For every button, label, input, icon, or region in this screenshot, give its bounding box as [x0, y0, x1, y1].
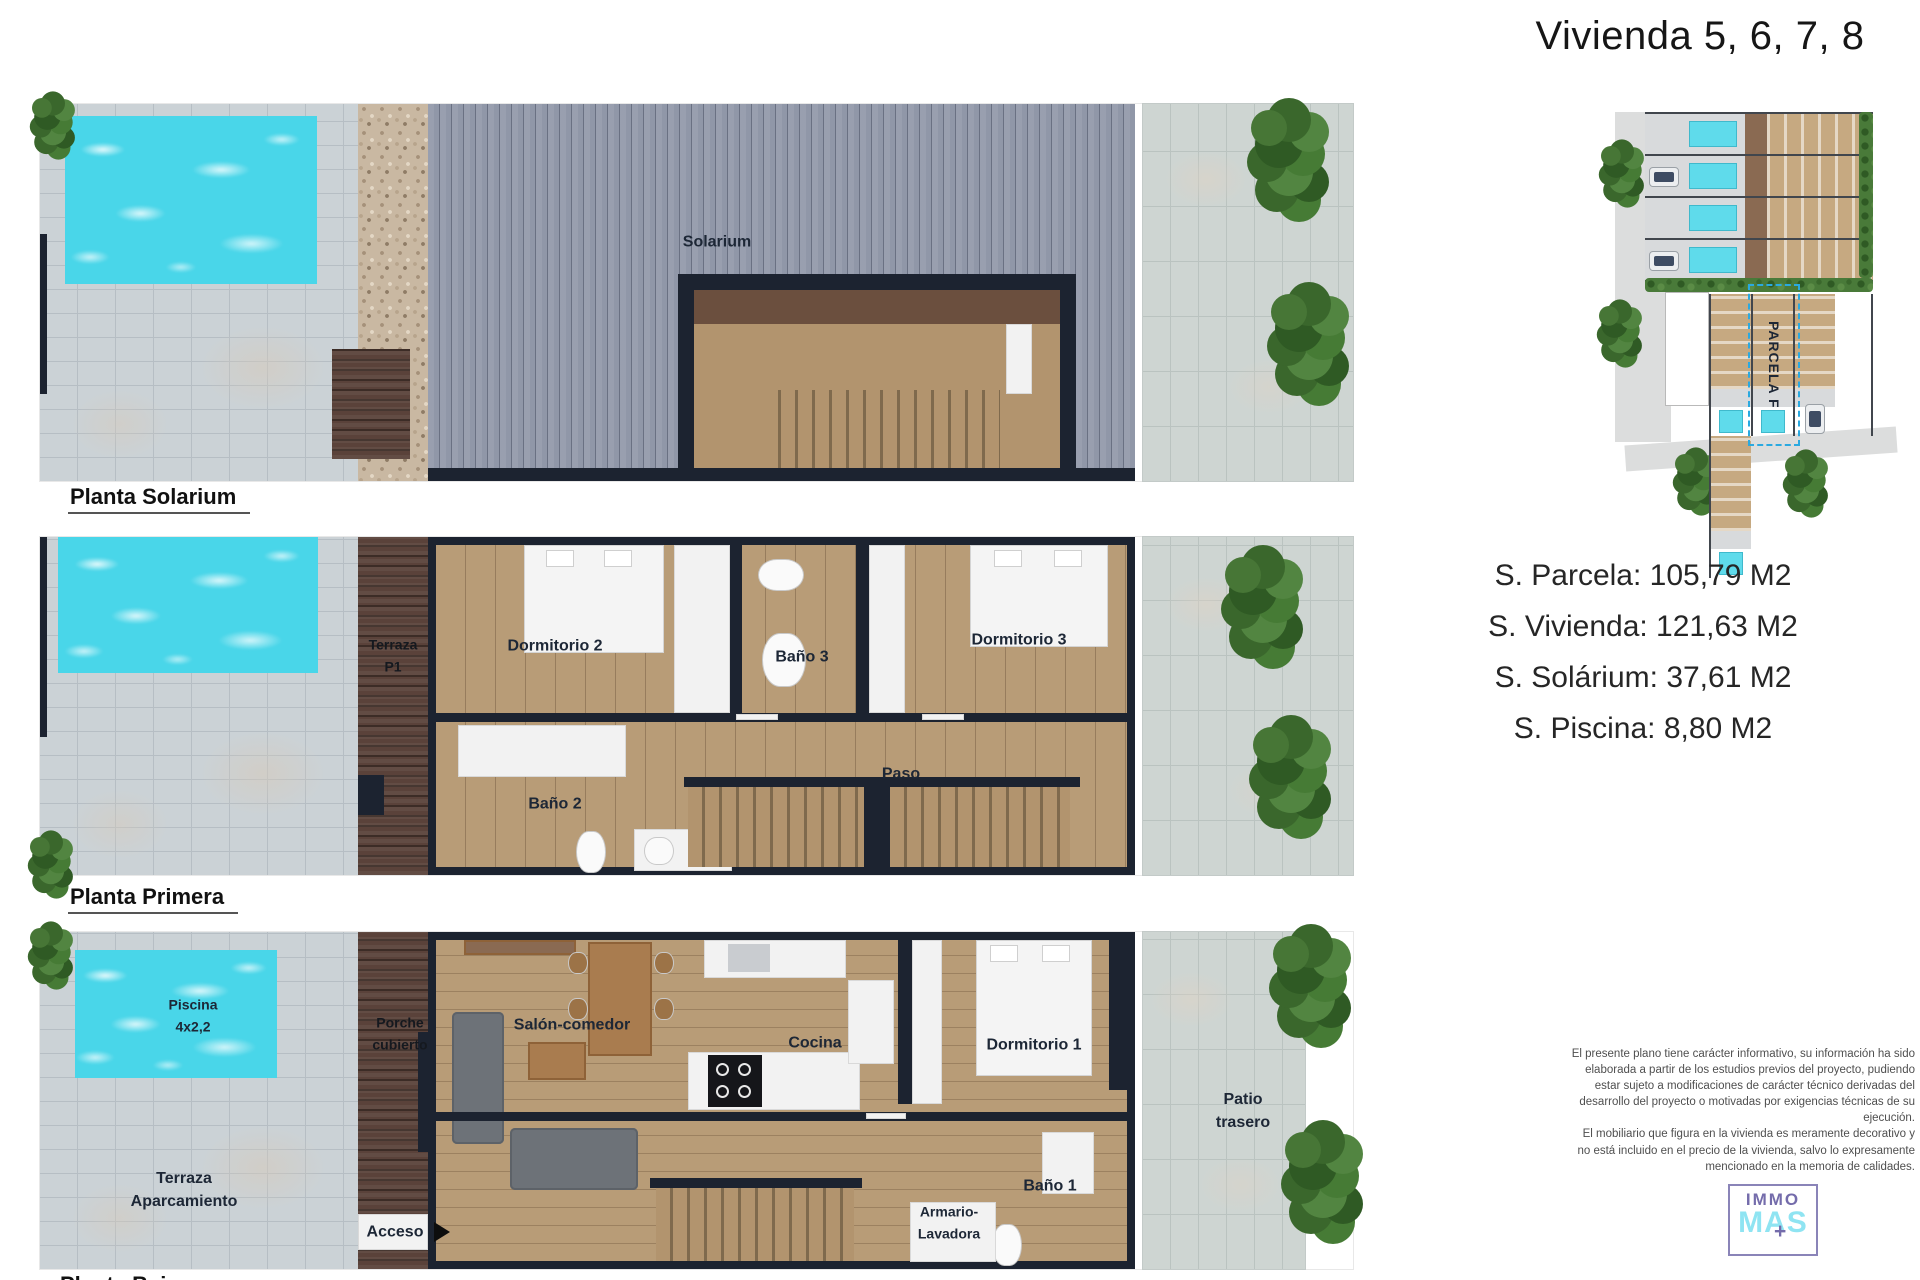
fridge-column [848, 980, 894, 1064]
room-label-piscina: Piscina 4x2,2 [168, 994, 217, 1037]
wardrobe-dark [1109, 940, 1127, 1090]
floor-plan-sheet: Solarium Planta Solarium Terraza P1 [0, 0, 1920, 1280]
baja-terrace-pavers: Piscina 4x2,2 Terraza Aparcamiento [40, 932, 358, 1269]
toilet [576, 831, 606, 873]
stairwell-box [678, 274, 1076, 481]
stair-rail [1006, 324, 1032, 394]
stair-wall [650, 1178, 862, 1188]
plant-icon [30, 928, 50, 948]
site-drive [1711, 389, 1751, 407]
dining-table [588, 942, 652, 1056]
stairs-flight-2 [890, 787, 1070, 867]
logo-mas-text: MAS [1730, 1208, 1816, 1238]
plan-title-solarium: Planta Solarium [68, 484, 250, 514]
sheet-title: Vivienda 5, 6, 7, 8 [1480, 14, 1920, 59]
logo-plus-icon: + [1774, 1220, 1786, 1244]
partition-wall [856, 545, 869, 713]
kitchen-counter [704, 940, 846, 978]
door-gap [866, 1113, 906, 1119]
stairs-flight-1 [688, 787, 864, 867]
car-icon [1649, 167, 1679, 187]
tree-icon [32, 98, 52, 118]
room-label-armario: Armario- Lavadora [918, 1201, 980, 1244]
primera-terrace-pavers [40, 537, 358, 875]
tree-icon [1675, 454, 1695, 474]
door-gap [736, 714, 778, 720]
hedge [1859, 112, 1873, 278]
plant-icon [30, 837, 50, 857]
room-label-patio: Patio trasero [1216, 1088, 1270, 1134]
plan-title-primera: Planta Primera [68, 884, 238, 914]
partition-wall [730, 545, 742, 713]
toilet [992, 1224, 1022, 1266]
closet [458, 725, 626, 777]
site-unit-col [1709, 294, 1751, 436]
site-deck [1745, 198, 1767, 238]
room-label-acceso: Acceso [367, 1220, 424, 1243]
room-label-terraza-p1: Terraza P1 [369, 634, 418, 677]
parcela-f-label: PARCELA F [1766, 321, 1782, 409]
tree-icon [1251, 110, 1287, 146]
wood-deck-block [332, 349, 410, 459]
solarium-side-paving [1143, 104, 1353, 481]
site-pool [1689, 247, 1737, 273]
upper-units [1645, 112, 1873, 280]
site-drive [1711, 531, 1751, 549]
terrace-left-wall [40, 537, 47, 737]
legal-disclaimer: El presente plano tiene carácter informa… [1570, 1046, 1915, 1175]
corridor-wall [436, 713, 1127, 722]
room-label-terraza-aparcamiento: Terraza Aparcamiento [131, 1167, 238, 1213]
primera-floor [436, 545, 1127, 867]
porche-deck [358, 932, 428, 1269]
site-interior [1767, 114, 1873, 154]
site-pool [1689, 163, 1737, 189]
room-label-dormitorio2: Dormitorio 2 [507, 634, 602, 657]
site-interior [1711, 294, 1751, 389]
cooktop [708, 1055, 762, 1107]
kitchen-appliance [728, 944, 770, 972]
partition-wall [898, 940, 912, 1104]
room-label-salon: Salón-comedor [514, 1013, 630, 1036]
plan-primera: Terraza P1 [40, 537, 1353, 875]
tree-icon [1225, 557, 1261, 593]
primera-building: Dormitorio 2 Baño 3 Dormitorio 3 Baño 2 … [428, 537, 1135, 875]
primera-side-paving [1143, 537, 1353, 875]
baja-building: Salón-comedor Cocina Dormitorio 1 Baño 1… [428, 932, 1135, 1269]
site-interior [1767, 240, 1873, 280]
site-interior [1711, 436, 1751, 531]
blank-unit [1665, 292, 1709, 406]
chair [568, 952, 588, 974]
stairwell-landing [694, 290, 1060, 324]
door-gap [922, 714, 964, 720]
plan-baja: Piscina 4x2,2 Terraza Aparcamiento Porch… [40, 932, 1353, 1269]
corridor-wall [436, 1112, 1127, 1121]
plan-solarium: Solarium [40, 104, 1353, 481]
wardrobe [674, 545, 730, 713]
disclaimer-paragraph-1: El presente plano tiene carácter informa… [1570, 1046, 1915, 1126]
parcela-f-outline: PARCELA F [1748, 284, 1800, 446]
tree-icon [1785, 456, 1805, 476]
site-deck [1745, 156, 1767, 196]
site-unit-row [1645, 114, 1873, 156]
site-pool [1689, 121, 1737, 147]
gravel-strip [358, 104, 428, 481]
site-pool [1719, 410, 1743, 433]
room-label-bano1: Baño 1 [1023, 1174, 1076, 1197]
site-interior [1767, 156, 1873, 196]
stairs [656, 1188, 854, 1261]
site-deck [1745, 240, 1767, 280]
site-deck [1745, 114, 1767, 154]
site-unit-row [1645, 240, 1873, 282]
room-label-solarium: Solarium [683, 230, 751, 253]
tree-icon [1253, 727, 1289, 763]
car-icon [1805, 404, 1825, 434]
tree-icon [1601, 146, 1621, 166]
terrace-wall-stub [358, 775, 384, 815]
baja-floor [436, 940, 1127, 1261]
site-plan-inset: PARCELA F [1615, 106, 1915, 472]
primera-pool [58, 537, 318, 673]
room-label-bano2: Baño 2 [528, 792, 581, 815]
disclaimer-paragraph-2: El mobiliario que figura en la vivienda … [1570, 1126, 1915, 1174]
chair [654, 998, 674, 1020]
surface-measurements: S. Parcela: 105,79 M2 S. Vivienda: 121,6… [1443, 550, 1843, 754]
tree-icon [1271, 294, 1307, 330]
room-label-cocina: Cocina [788, 1031, 841, 1054]
terrace-left-wall [40, 234, 47, 394]
solarium-terrace-pavers [40, 104, 358, 481]
site-unit-row [1645, 156, 1873, 198]
solarium-pool [65, 116, 317, 284]
tree-icon [1599, 306, 1619, 326]
measure-vivienda: S. Vivienda: 121,63 M2 [1443, 601, 1843, 652]
stair-divider [864, 787, 890, 867]
site-unit-row [1645, 198, 1873, 240]
hall-wall [869, 545, 905, 713]
terraza-p1-deck: Terraza P1 [358, 537, 428, 875]
building-bottom-wall [428, 468, 1135, 481]
site-interior [1795, 294, 1835, 389]
sofa [452, 1012, 504, 1144]
measure-piscina: S. Piscina: 8,80 M2 [1443, 703, 1843, 754]
site-pool [1689, 205, 1737, 231]
site-interior [1767, 198, 1873, 238]
chair [654, 952, 674, 974]
measure-parcela: S. Parcela: 105,79 M2 [1443, 550, 1843, 601]
room-label-dormitorio1: Dormitorio 1 [986, 1033, 1081, 1056]
coffee-table [528, 1042, 586, 1080]
measure-solarium: S. Solárium: 37,61 M2 [1443, 652, 1843, 703]
solarium-building: Solarium [428, 104, 1135, 481]
stairwell-floor [694, 290, 1060, 481]
room-label-porche: Porche cubierto [372, 1012, 427, 1055]
room-label-dormitorio3: Dormitorio 3 [971, 628, 1066, 651]
plan-title-baja: Planta Baja [58, 1272, 193, 1280]
tree-icon [1285, 1132, 1321, 1168]
tv-unit [464, 940, 576, 955]
immomas-logo: IMMO MAS + [1728, 1184, 1818, 1256]
access-arrow-icon [434, 1222, 450, 1242]
shower [758, 559, 804, 591]
hall-wall [912, 940, 942, 1104]
sofa [510, 1128, 638, 1190]
car-icon [1649, 251, 1679, 271]
tree-icon [1273, 936, 1309, 972]
room-label-paso: Paso [882, 762, 920, 785]
room-label-bano3: Baño 3 [775, 645, 828, 668]
